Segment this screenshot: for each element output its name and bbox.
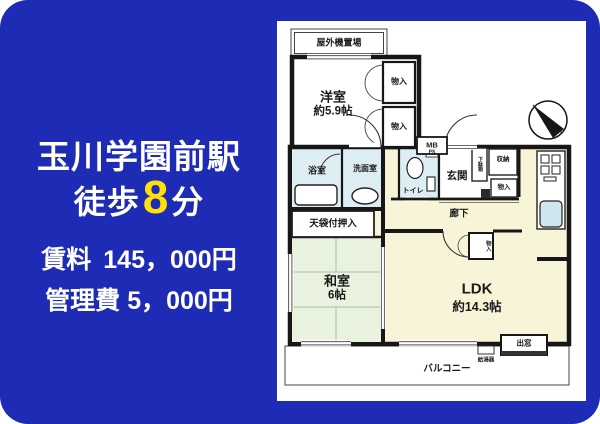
- label-bay-window: 出窓: [517, 339, 532, 347]
- rent-value: 145，000円: [103, 240, 236, 276]
- rent-label: 賃料: [41, 240, 91, 276]
- walk-suffix: 分: [171, 177, 204, 223]
- walk-time-line: 徒歩 8 分: [0, 177, 278, 223]
- label-outdoor-unit: 屋外機置場: [316, 39, 361, 48]
- floorplan-labels: 屋外機置場 洋室 約5.9帖 物入 物入 MB PS 浴室 洗面室 トイレ 玄関…: [277, 21, 586, 401]
- label-japanese-room: 和室: [324, 275, 350, 288]
- label-ldk-size: 約14.3帖: [452, 301, 501, 314]
- label-hallway: 廊下: [449, 209, 468, 219]
- label-western-room-size: 約5.9帖: [314, 106, 353, 118]
- label-japanese-room-size: 6帖: [328, 290, 346, 302]
- rent-line: 賃料 145，000円: [0, 240, 278, 276]
- label-entrance: 玄関: [447, 171, 468, 182]
- fee-label: 管理費: [45, 281, 120, 317]
- label-water-heater: 給湯器: [478, 358, 495, 364]
- real-estate-flyer: 玉川学園前駅 徒歩 8 分 賃料 145，000円 管理費 5，000円: [0, 0, 600, 424]
- fee-value: 5，000円: [127, 281, 233, 317]
- label-ldk: LDK: [462, 282, 493, 297]
- label-pipe-space: PS: [429, 151, 436, 156]
- label-shoe-cabinet: 下駄箱: [477, 157, 482, 172]
- label-meter-box: MB: [426, 141, 438, 149]
- label-western-room: 洋室: [320, 91, 346, 104]
- label-closet-japanese: 天袋付押入: [309, 219, 357, 229]
- walk-minutes: 8: [143, 177, 169, 218]
- floorplan-panel: 屋外機置場 洋室 約5.9帖 物入 物入 MB PS 浴室 洗面室 トイレ 玄関…: [277, 21, 586, 401]
- label-ldk-closet: 物入: [484, 241, 490, 252]
- station-name: 玉川学園前駅: [0, 140, 278, 175]
- label-washroom: 洗面室: [353, 165, 377, 173]
- label-closet-top-2: 物入: [391, 123, 407, 131]
- label-closet-top-1: 物入: [391, 78, 407, 86]
- label-balcony: バルコニー: [423, 364, 470, 374]
- label-storage: 収納: [497, 157, 510, 164]
- promo-text-block: 玉川学園前駅 徒歩 8 分 賃料 145，000円 管理費 5，000円: [0, 0, 278, 424]
- walk-prefix: 徒歩: [74, 177, 140, 223]
- label-storage-small: 物入: [498, 185, 511, 192]
- label-bathroom: 浴室: [308, 167, 326, 176]
- label-toilet: トイレ: [403, 188, 424, 195]
- fee-line: 管理費 5，000円: [0, 281, 278, 317]
